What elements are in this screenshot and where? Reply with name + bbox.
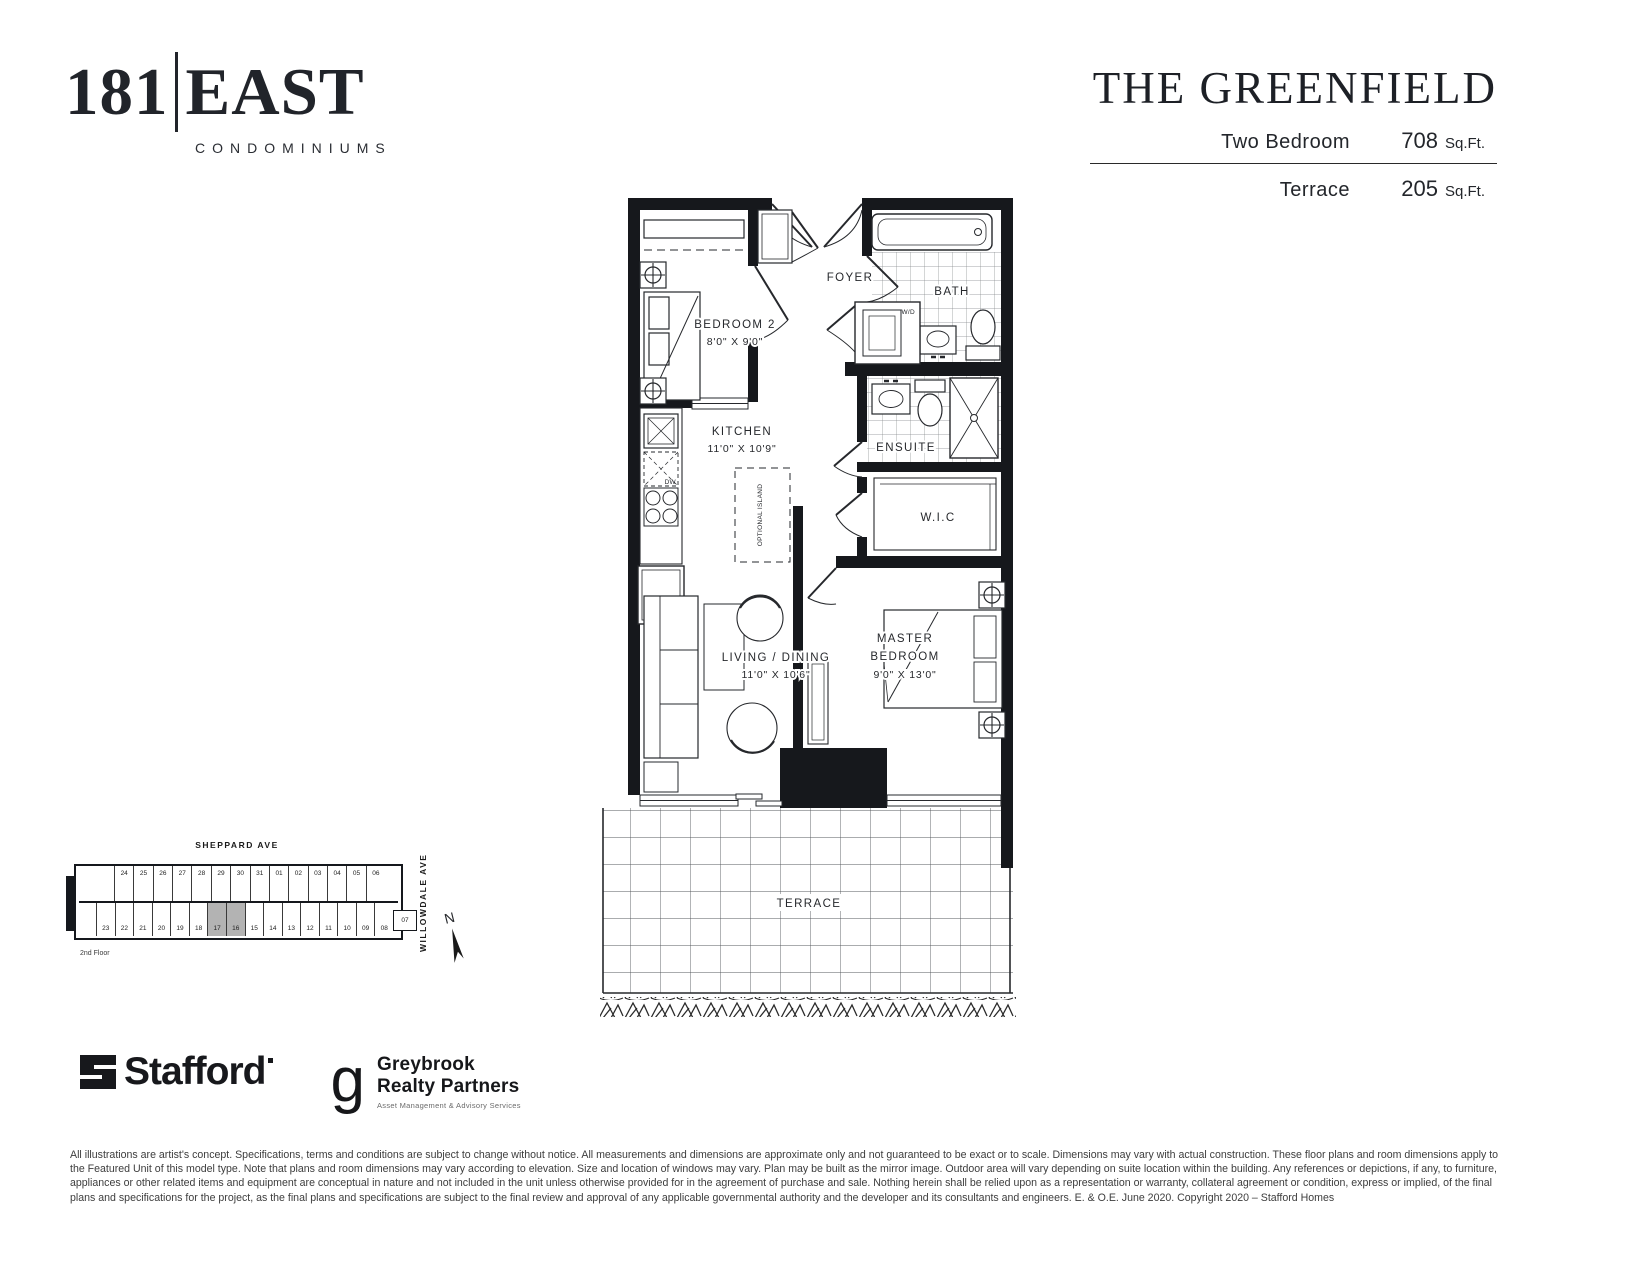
terrace-area: TERRACE xyxy=(600,808,1016,1017)
keyplan-unit-21: 21 xyxy=(133,903,152,936)
living-furniture xyxy=(644,595,783,792)
stafford-logo: Stafford xyxy=(78,1052,273,1091)
greybrook-line2: Realty Partners xyxy=(377,1076,521,1098)
room-label-bedroom2: BEDROOM 2 xyxy=(694,319,776,331)
keyplan-unit-12: 12 xyxy=(300,903,319,936)
greybrook-logo: g Greybrook Realty Partners Asset Manage… xyxy=(331,1048,521,1110)
optional-island: OPTIONAL ISLAND xyxy=(735,468,790,562)
keyplan-unit-15: 15 xyxy=(245,903,264,936)
keyplan-unit-02: 02 xyxy=(288,866,307,901)
key-plan: SHEPPARD AVE 242526272829303101020304050… xyxy=(72,838,412,988)
kitchen-fixtures xyxy=(638,408,684,624)
keyplan-unit-18: 18 xyxy=(189,903,208,936)
keyplan-unit-24: 24 xyxy=(114,866,133,901)
sofa xyxy=(644,596,698,758)
ceiling-light-icon xyxy=(979,582,1005,608)
keyplan-unit-10: 10 xyxy=(337,903,356,936)
keyplan-unit-22: 22 xyxy=(115,903,134,936)
toilet-tank xyxy=(966,346,1000,360)
room-label-living: LIVING / DINING xyxy=(722,652,831,664)
keyplan-unit-07: 07 xyxy=(393,910,417,931)
keyplan-unit-20: 20 xyxy=(152,903,171,936)
greybrook-line1: Greybrook xyxy=(377,1054,521,1076)
ceiling-light-icon xyxy=(640,378,666,404)
room-label-master-2: BEDROOM xyxy=(870,651,939,663)
toilet-bowl xyxy=(918,394,942,426)
keyplan-unit-17: 17 xyxy=(207,903,226,936)
sliding-door-panel xyxy=(756,801,782,806)
room-label-kitchen: KITCHEN xyxy=(712,426,772,438)
pillow xyxy=(974,616,996,658)
room-label-ensuite: ENSUITE xyxy=(876,442,936,454)
greybrook-text: Greybrook Realty Partners Asset Manageme… xyxy=(377,1054,521,1110)
keyplan-unit-19: 19 xyxy=(170,903,189,936)
pillow xyxy=(974,662,996,702)
keyplan-top-row: 2425262728293031010203040506 xyxy=(114,866,385,901)
keyplan-unit-11: 11 xyxy=(319,903,338,936)
street-label-sheppard: SHEPPARD AVE xyxy=(72,840,402,850)
keyplan-unit-14: 14 xyxy=(263,903,282,936)
room-label-foyer: FOYER xyxy=(827,272,874,284)
keyplan-unit-08: 08 xyxy=(374,903,393,936)
keyplan-unit-31: 31 xyxy=(250,866,269,901)
greybrook-subline: Asset Management & Advisory Services xyxy=(377,1101,521,1110)
keyplan-unit-03: 03 xyxy=(308,866,327,901)
room-label-wic: W.I.C xyxy=(920,512,955,524)
ceiling-light-icon xyxy=(979,712,1005,738)
key-plan-building: 2425262728293031010203040506 23222120191… xyxy=(74,864,403,940)
room-dim-bedroom2: 8'0" X 9'0" xyxy=(707,336,763,348)
room-dim-kitchen: 11'0" X 10'9" xyxy=(708,443,777,455)
keyplan-unit-09: 09 xyxy=(356,903,375,936)
island-label: OPTIONAL ISLAND xyxy=(757,484,764,546)
stafford-wordmark: Stafford xyxy=(124,1052,266,1091)
sliding-door-panel xyxy=(736,794,762,799)
side-table xyxy=(644,762,678,792)
room-label-master-1: MASTER xyxy=(877,633,933,645)
keyplan-unit-23: 23 xyxy=(96,903,115,936)
room-dim-living: 11'0" X 10'6" xyxy=(742,669,811,681)
keyplan-unit-29: 29 xyxy=(211,866,230,901)
keyplan-unit-28: 28 xyxy=(191,866,210,901)
floor-label: 2nd Floor xyxy=(80,950,110,957)
keyplan-unit-04: 04 xyxy=(327,866,346,901)
street-label-willowdale: WILLOWDALE AVE xyxy=(418,845,428,960)
keyplan-unit-26: 26 xyxy=(153,866,172,901)
keyplan-unit-16: 16 xyxy=(226,903,245,936)
floorplan-page: { "logo": { "number": "181", "name": "EA… xyxy=(0,0,1650,1275)
keyplan-unit-30: 30 xyxy=(230,866,249,901)
north-arrow-glyph xyxy=(446,928,464,963)
footer-logos: Stafford g Greybrook Realty Partners Ass… xyxy=(78,1052,521,1110)
keyplan-unit-01: 01 xyxy=(269,866,288,901)
pillow xyxy=(649,333,669,365)
room-label-terrace: TERRACE xyxy=(777,898,842,910)
trademark-icon xyxy=(268,1058,273,1063)
keyplan-unit-27: 27 xyxy=(172,866,191,901)
planter-band xyxy=(600,997,1016,1017)
keyplan-unit-06: 06 xyxy=(366,866,385,901)
disclaimer-text: All illustrations are artist's concept. … xyxy=(70,1148,1502,1205)
closet-shelf xyxy=(644,220,744,238)
stafford-icon xyxy=(78,1053,118,1091)
north-label: N xyxy=(443,909,457,927)
room-dim-master: 9'0" X 13'0" xyxy=(873,669,936,681)
building-left-end xyxy=(66,876,74,931)
room-label-wd: W/D xyxy=(901,309,915,316)
ceiling-light-icon xyxy=(640,262,666,288)
north-arrow: N xyxy=(437,896,477,968)
foyer-closet xyxy=(758,210,792,263)
pillow xyxy=(649,297,669,329)
keyplan-unit-25: 25 xyxy=(133,866,152,901)
greybrook-g-icon: g xyxy=(331,1056,365,1106)
keyplan-unit-05: 05 xyxy=(346,866,365,901)
keyplan-unit-13: 13 xyxy=(282,903,301,936)
keyplan-bottom-row: 23222120191817161514131211100908 xyxy=(96,903,393,936)
room-label-bath: BATH xyxy=(934,286,969,298)
bedroom2-furniture xyxy=(644,220,744,400)
dishwasher-label: DW xyxy=(665,479,677,486)
toilet-tank xyxy=(915,380,945,392)
toilet-bowl xyxy=(971,310,995,344)
